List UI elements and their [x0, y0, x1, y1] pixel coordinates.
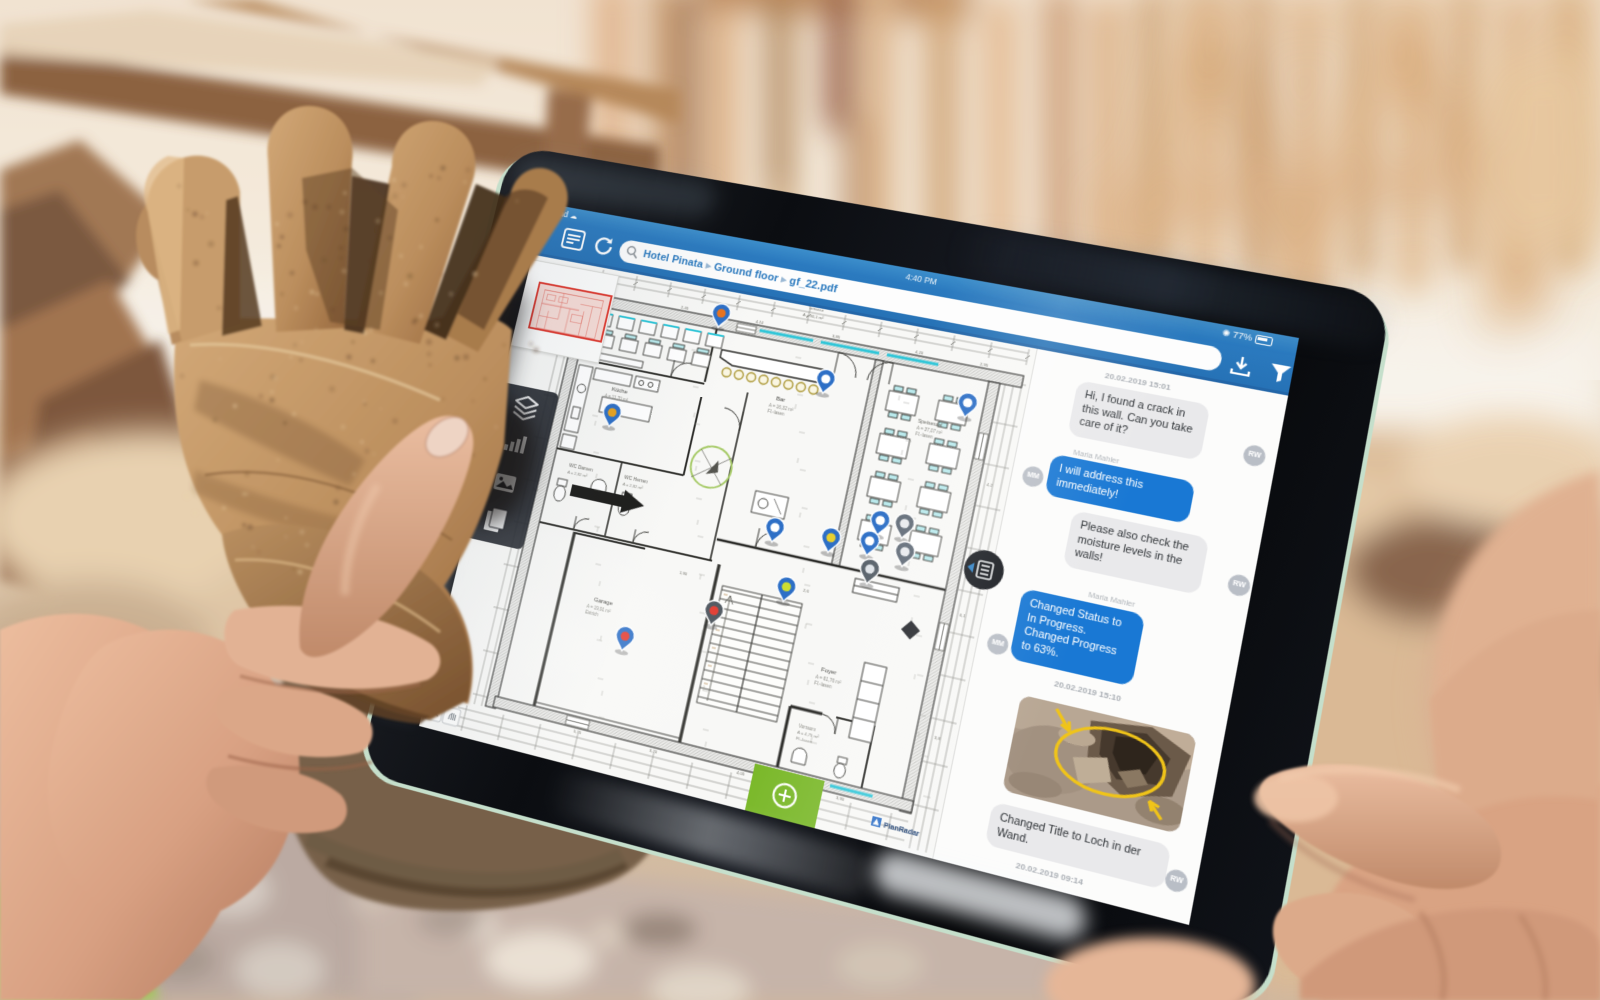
- svg-text:6,1: 6,1: [959, 613, 966, 619]
- svg-text:2,6: 2,6: [803, 588, 810, 594]
- svg-text:4,2: 4,2: [986, 482, 993, 488]
